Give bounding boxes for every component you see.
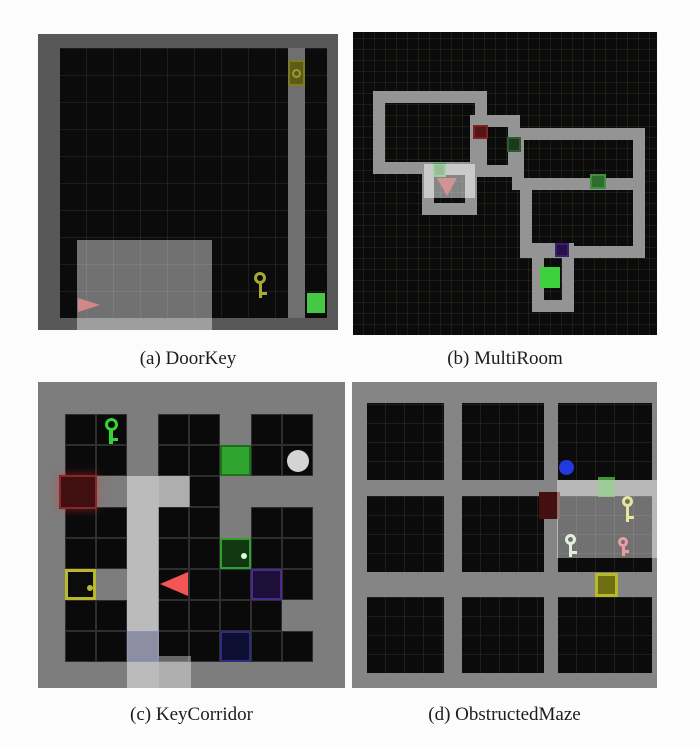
- door-green-locked: [220, 538, 251, 569]
- panel-multiroom: [353, 32, 657, 335]
- box-yellow: [65, 569, 96, 600]
- grid-cell: [158, 414, 189, 445]
- grid-cell: [251, 538, 282, 569]
- grid-cell: [158, 445, 189, 476]
- door-red-locked: [59, 475, 97, 509]
- agent-triangle-red: [160, 572, 188, 596]
- door-red: [473, 125, 488, 139]
- grid-cell: [158, 600, 189, 631]
- agent-view-highlight: [424, 164, 475, 198]
- ball-blue: [559, 460, 574, 475]
- grid-cell: [96, 538, 127, 569]
- door-blue-right: [220, 631, 251, 662]
- key-tooth: [113, 438, 118, 441]
- agent-view-highlight: [77, 240, 212, 330]
- agent-view-highlight: [557, 480, 657, 558]
- caption-doorkey: (a) DoorKey: [38, 348, 338, 370]
- grid-cell: [96, 600, 127, 631]
- grid-cell: [96, 445, 127, 476]
- grid-cell: [251, 507, 282, 538]
- grid-cell: [282, 538, 313, 569]
- grid-cell: [158, 538, 189, 569]
- room-1-1: [367, 403, 444, 480]
- room-3-3: [558, 597, 652, 673]
- grid-cell: [65, 600, 96, 631]
- grid-cell: [96, 631, 127, 662]
- grid-cell: [220, 569, 251, 600]
- grid-cell: [189, 507, 220, 538]
- grid-cell: [65, 507, 96, 538]
- grid-cell: [189, 414, 220, 445]
- grid-cell: [65, 414, 96, 445]
- room-1-2: [462, 403, 544, 480]
- key-green-icon: [102, 418, 120, 444]
- grid-cell: [189, 476, 220, 507]
- door-purple: [555, 243, 569, 257]
- grid-cell: [158, 507, 189, 538]
- grid-cell: [251, 600, 282, 631]
- caption-keycorridor: (c) KeyCorridor: [38, 704, 345, 726]
- grid-cell: [251, 414, 282, 445]
- caption-obstructedmaze: (d) ObstructedMaze: [352, 704, 657, 726]
- grid-cell: [96, 507, 127, 538]
- room-3-2: [462, 597, 544, 673]
- room-2-2: [462, 496, 544, 572]
- corridor-view-highlight-bottom: [159, 656, 191, 688]
- box-yellow: [595, 573, 618, 597]
- key-stem: [109, 429, 113, 444]
- figure-page: (a) DoorKey (b) MultiRoom (c) KeyCorrido…: [0, 0, 700, 748]
- grid-cell: [251, 445, 282, 476]
- grid-cell: [65, 538, 96, 569]
- panel-keycorridor: [38, 382, 345, 688]
- grid-cell: [220, 600, 251, 631]
- panel-doorkey: [38, 34, 338, 330]
- door-knob: [241, 553, 247, 559]
- door-green-open: [220, 445, 251, 476]
- grid-cell: [251, 631, 282, 662]
- grid-cell: [65, 445, 96, 476]
- grid-cell: [282, 569, 313, 600]
- door-knob: [87, 585, 93, 591]
- grid-cell: [189, 445, 220, 476]
- panel-obstructedmaze: [352, 382, 657, 688]
- door-purple: [251, 569, 282, 600]
- door-dark-green: [507, 137, 521, 152]
- caption-multiroom: (b) MultiRoom: [353, 348, 657, 370]
- corridor-view-highlight-top: [159, 476, 190, 507]
- goal-square-green: [540, 267, 560, 288]
- corridor-view-highlight: [127, 476, 159, 688]
- room-3-1: [367, 597, 444, 673]
- grid-cell: [189, 600, 220, 631]
- grid-cell: [189, 569, 220, 600]
- grid-cell: [282, 507, 313, 538]
- grid-cell: [282, 631, 313, 662]
- grid-cell: [65, 631, 96, 662]
- ball-white: [287, 450, 309, 472]
- grid-cell: [282, 414, 313, 445]
- door-green-middle: [590, 174, 606, 189]
- grid-cell: [189, 631, 220, 662]
- room-2-1: [367, 496, 444, 572]
- grid-cell: [189, 538, 220, 569]
